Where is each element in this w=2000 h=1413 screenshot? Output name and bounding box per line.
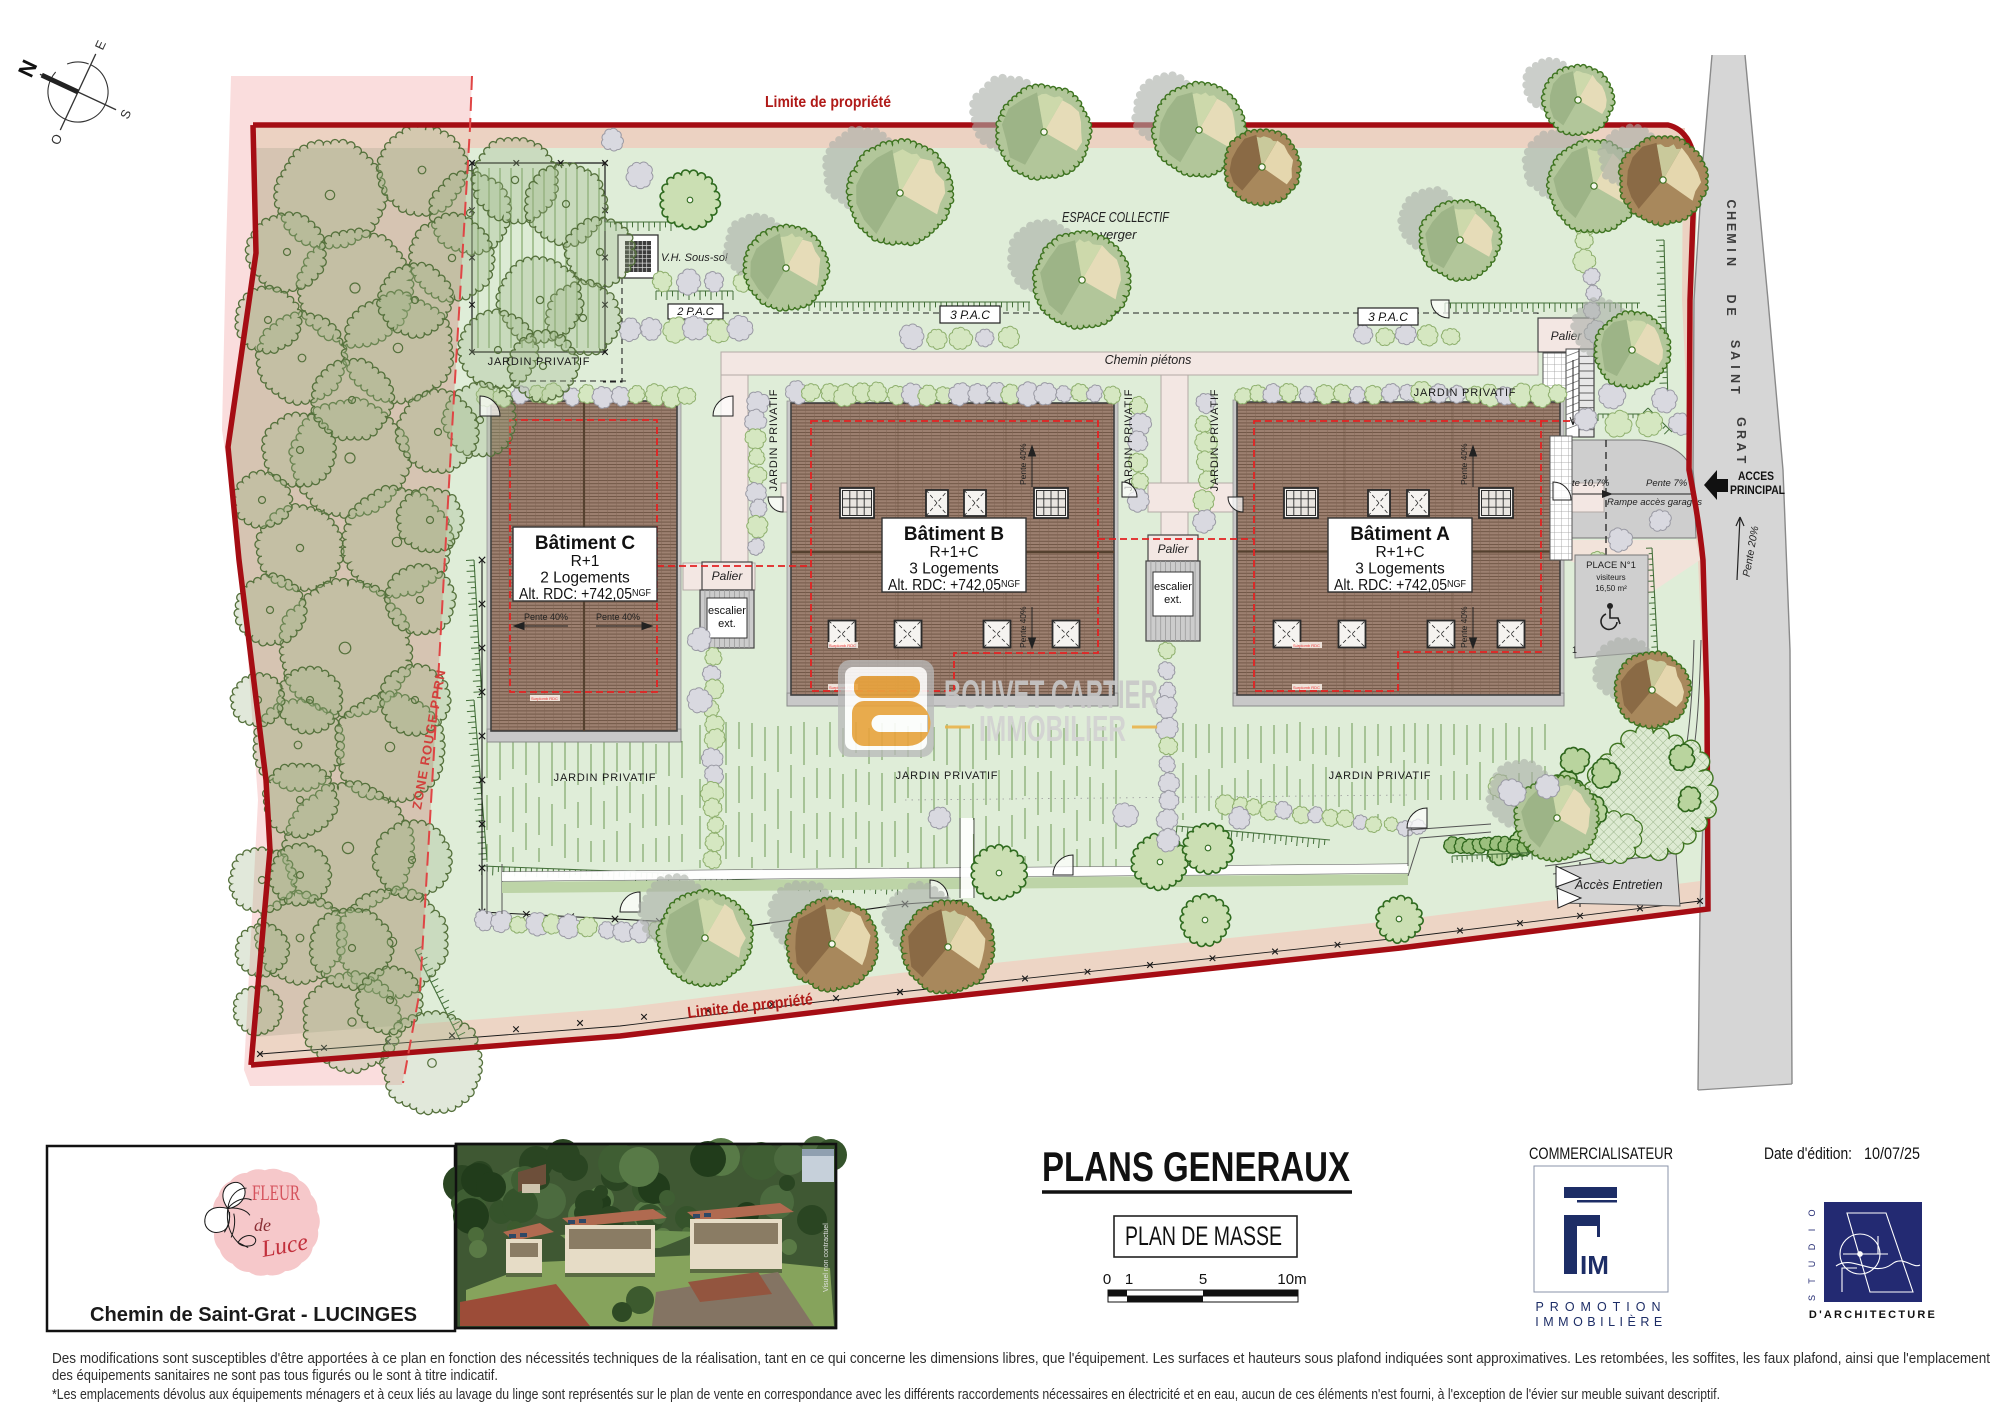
svg-text:G: G — [1734, 417, 1748, 427]
svg-text:E: E — [1724, 223, 1738, 231]
svg-text:IMMOBILIER: IMMOBILIER — [979, 708, 1126, 749]
svg-text:16,50 m²: 16,50 m² — [1595, 584, 1627, 593]
svg-text:R: R — [1734, 430, 1748, 439]
svg-text:Alt. RDC: +742,05NGF: Alt. RDC: +742,05NGF — [888, 577, 1020, 594]
svg-text:S: S — [1807, 1295, 1817, 1301]
svg-text:D: D — [1724, 294, 1738, 303]
svg-text:V.H. Sous-sol: V.H. Sous-sol — [661, 252, 728, 264]
svg-text:JARDIN PRIVATIF: JARDIN PRIVATIF — [896, 770, 999, 782]
svg-text:D: D — [1807, 1243, 1817, 1250]
svg-text:escalier: escalier — [708, 605, 746, 617]
svg-text:PRINCIPAL: PRINCIPAL — [1730, 483, 1785, 497]
svg-text:*Les emplacements dévolus aux: *Les emplacements dévolus aux équipement… — [52, 1387, 1720, 1403]
svg-text:JARDIN PRIVATIF: JARDIN PRIVATIF — [1123, 389, 1135, 492]
svg-text:Pente 40%: Pente 40% — [1018, 443, 1028, 485]
svg-text:I: I — [1724, 248, 1738, 251]
svg-text:ACCES: ACCES — [1738, 469, 1774, 483]
svg-text:Bâtiment A: Bâtiment A — [1350, 524, 1450, 545]
svg-text:Limite de propriété: Limite de propriété — [765, 94, 891, 111]
svg-text:Date d'édition:: Date d'édition: — [1764, 1145, 1852, 1163]
svg-text:PLAN DE MASSE: PLAN DE MASSE — [1125, 1221, 1282, 1251]
svg-text:3 P.A.C: 3 P.A.C — [1368, 310, 1408, 324]
svg-text:Bâtiment C: Bâtiment C — [535, 533, 636, 554]
svg-text:Des modifications sont suscept: Des modifications sont susceptibles d'êt… — [52, 1351, 1990, 1367]
svg-text:Surplomb RDC: Surplomb RDC — [1293, 685, 1320, 690]
svg-text:N: N — [1728, 374, 1742, 383]
svg-text:Accès Entretien: Accès Entretien — [1574, 878, 1663, 892]
svg-text:Chemin de Saint-Grat - LUCINGE: Chemin de Saint-Grat - LUCINGES — [90, 1304, 417, 1326]
svg-text:escalier: escalier — [1154, 581, 1192, 593]
svg-text:Pente 40%: Pente 40% — [1018, 606, 1028, 648]
svg-text:E: E — [1724, 307, 1738, 315]
svg-text:A: A — [1734, 442, 1748, 451]
svg-text:JARDIN PRIVATIF: JARDIN PRIVATIF — [1329, 770, 1432, 782]
svg-text:2 Logements: 2 Logements — [540, 570, 630, 587]
svg-text:de: de — [254, 1215, 271, 1235]
svg-text:I: I — [1728, 365, 1742, 368]
svg-text:O: O — [1807, 1209, 1817, 1216]
svg-text:M: M — [1724, 233, 1738, 243]
svg-text:Visuel non contractuel: Visuel non contractuel — [823, 1223, 830, 1292]
svg-text:COMMERCIALISATEUR: COMMERCIALISATEUR — [1529, 1145, 1673, 1163]
svg-text:A: A — [1728, 351, 1742, 360]
svg-text:10/07/25: 10/07/25 — [1864, 1145, 1920, 1163]
svg-text:N: N — [1724, 257, 1738, 266]
svg-text:Pente 7%: Pente 7% — [1646, 478, 1688, 489]
svg-text:5: 5 — [1199, 1271, 1207, 1288]
svg-text:I: I — [1807, 1229, 1817, 1232]
svg-text:visiteurs: visiteurs — [1596, 573, 1625, 582]
svg-text:ext.: ext. — [1164, 594, 1182, 606]
svg-text:R+1+C: R+1+C — [929, 544, 978, 561]
svg-text:PLACE N°1: PLACE N°1 — [1586, 560, 1636, 571]
svg-text:Palier: Palier — [712, 569, 744, 583]
svg-text:PROMOTION: PROMOTION — [1535, 1300, 1666, 1314]
svg-text:des équipements sanitaires ne: des équipements sanitaires ne sont pas t… — [52, 1368, 498, 1384]
svg-text:JARDIN PRIVATIF: JARDIN PRIVATIF — [1209, 389, 1221, 492]
svg-text:te 10,7%: te 10,7% — [1572, 478, 1610, 489]
svg-text:JARDIN PRIVATIF: JARDIN PRIVATIF — [488, 356, 591, 368]
svg-text:T: T — [1734, 456, 1748, 464]
svg-text:H: H — [1724, 211, 1738, 220]
svg-text:Alt. RDC: +742,05NGF: Alt. RDC: +742,05NGF — [519, 586, 651, 603]
svg-text:Surplomb RDC: Surplomb RDC — [829, 643, 856, 648]
svg-text:JARDIN PRIVATIF: JARDIN PRIVATIF — [768, 389, 780, 492]
svg-text:D'ARCHITECTURE: D'ARCHITECTURE — [1809, 1309, 1937, 1321]
svg-text:Pente 40%: Pente 40% — [1459, 443, 1469, 485]
svg-text:10m: 10m — [1277, 1271, 1306, 1288]
svg-text:Palier: Palier — [1158, 542, 1190, 556]
svg-text:0: 0 — [1103, 1271, 1111, 1288]
svg-text:Rampe accès garages: Rampe accès garages — [1607, 497, 1702, 508]
svg-text:3 Logements: 3 Logements — [1355, 561, 1445, 578]
svg-text:Surplomb RDC: Surplomb RDC — [1293, 643, 1320, 648]
svg-text:ext.: ext. — [718, 618, 736, 630]
svg-text:1: 1 — [1572, 645, 1577, 655]
svg-text:R+1: R+1 — [571, 553, 600, 570]
svg-text:JARDIN PRIVATIF: JARDIN PRIVATIF — [1414, 387, 1517, 399]
svg-text:3 Logements: 3 Logements — [909, 561, 999, 578]
svg-text:C: C — [1724, 199, 1738, 208]
svg-text:3 P.A.C: 3 P.A.C — [950, 308, 990, 322]
svg-text:U: U — [1807, 1261, 1817, 1268]
svg-text:Pente 40%: Pente 40% — [1459, 606, 1469, 648]
svg-text:Pente 40%: Pente 40% — [524, 612, 568, 622]
svg-text:Surplomb RDC: Surplomb RDC — [531, 696, 558, 701]
svg-text:Alt. RDC: +742,05NGF: Alt. RDC: +742,05NGF — [1334, 577, 1466, 594]
svg-text:Chemin piétons: Chemin piétons — [1105, 353, 1192, 367]
svg-text:S: S — [1728, 340, 1742, 348]
svg-text:JARDIN PRIVATIF: JARDIN PRIVATIF — [554, 772, 657, 784]
svg-text:Pente 40%: Pente 40% — [596, 612, 640, 622]
svg-text:Bâtiment B: Bâtiment B — [904, 524, 1004, 545]
svg-text:1: 1 — [1125, 1271, 1133, 1288]
svg-text:FLEUR: FLEUR — [252, 1180, 300, 1205]
svg-text:R+1+C: R+1+C — [1375, 544, 1424, 561]
svg-text:ESPACE COLLECTIF: ESPACE COLLECTIF — [1062, 210, 1170, 226]
svg-text:IMMOBILIÈRE: IMMOBILIÈRE — [1535, 1314, 1666, 1329]
svg-text:T: T — [1807, 1278, 1817, 1284]
svg-text:PLANS GENERAUX: PLANS GENERAUX — [1042, 1143, 1350, 1190]
svg-text:IM: IM — [1580, 1250, 1609, 1280]
svg-text:T: T — [1728, 386, 1742, 394]
